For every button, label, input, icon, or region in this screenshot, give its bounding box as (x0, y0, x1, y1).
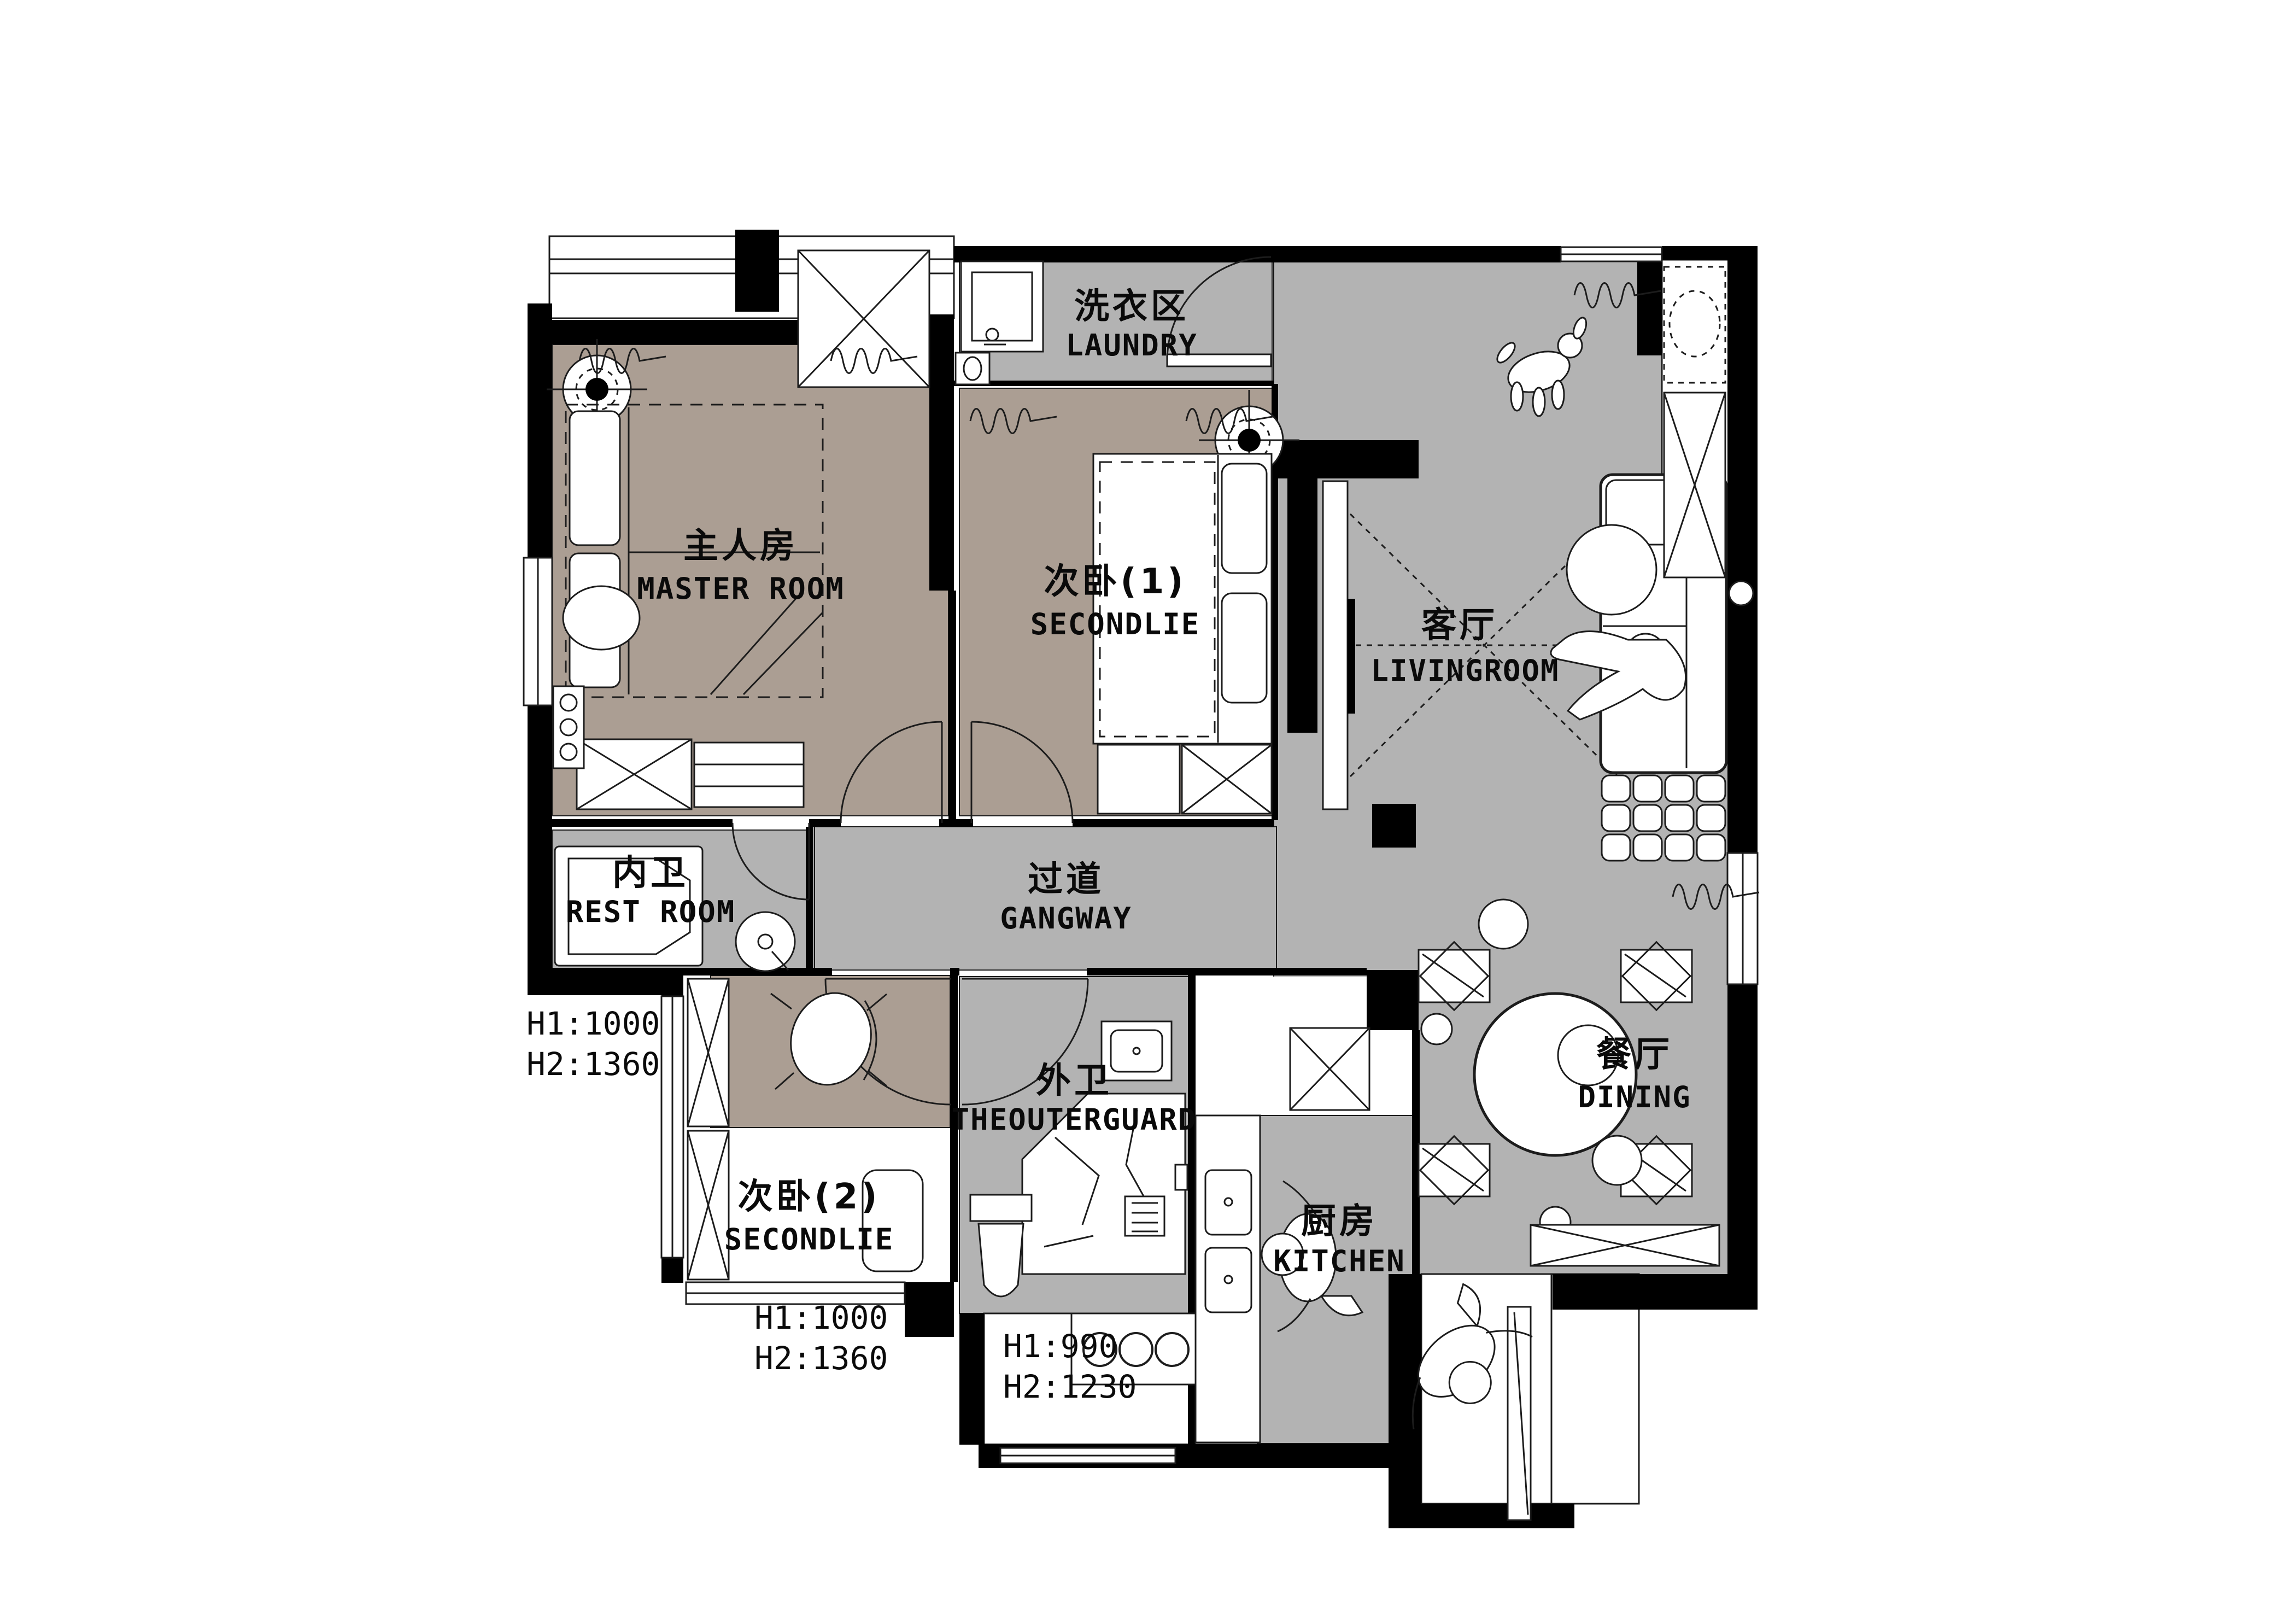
svg-text:洗衣区: 洗衣区 (1074, 287, 1189, 327)
svg-text:LAUNDRY: LAUNDRY (1065, 328, 1198, 363)
kitchen-counter (1196, 1115, 1260, 1442)
svg-text:厨房: 厨房 (1301, 1201, 1378, 1242)
svg-text:主人房: 主人房 (683, 526, 798, 566)
svg-text:H1:990: H1:990 (1003, 1328, 1118, 1365)
bedside-rug (563, 586, 640, 650)
svg-text:LIVINGROOM: LIVINGROOM (1370, 653, 1559, 688)
dining-chair (1419, 942, 1490, 1010)
dim-bottom-left: H1:1000H2:1360 (754, 1299, 888, 1377)
svg-text:H2:1230: H2:1230 (1003, 1368, 1137, 1405)
window-master-bay (524, 558, 552, 705)
laundry-sink (961, 261, 1043, 352)
floor-plan-canvas: 主人房MASTER ROOM 次卧(1)SECONDLIE 次卧(2)SECON… (0, 0, 2296, 1624)
bedroom2-wardrobe (688, 979, 729, 1280)
svg-text:GANGWAY: GANGWAY (1000, 901, 1132, 936)
pendant-light (1479, 899, 1528, 949)
door-entry (1508, 1307, 1531, 1520)
window-right (1727, 853, 1758, 984)
master-dresser (694, 743, 804, 807)
wash-basin (736, 912, 795, 971)
balcony-wardrobe (798, 250, 929, 387)
floor-plan: 主人房MASTER ROOM 次卧(1)SECONDLIE 次卧(2)SECON… (0, 0, 2296, 1624)
room-label-bedroom1: 次卧(1)SECONDLIE (1030, 562, 1200, 641)
side-table (1567, 525, 1656, 615)
svg-text:次卧(1): 次卧(1) (1044, 562, 1186, 602)
svg-text:REST ROOM: REST ROOM (566, 895, 736, 929)
pendant-light (1592, 1136, 1642, 1185)
window-living-top (1561, 247, 1662, 261)
svg-text:餐厅: 餐厅 (1596, 1035, 1673, 1075)
svg-text:H1:1000: H1:1000 (526, 1005, 660, 1042)
dining-chair (1621, 942, 1692, 1010)
wall-appliance (553, 686, 584, 768)
dining-chair (1419, 1136, 1490, 1204)
svg-text:次卧(2): 次卧(2) (737, 1177, 880, 1217)
svg-text:MASTER ROOM: MASTER ROOM (637, 571, 845, 606)
window-bedroom2-left (661, 996, 683, 1258)
shoe-cabinet (1531, 1225, 1719, 1266)
pendant-light (1421, 1014, 1452, 1044)
svg-text:H2:1360: H2:1360 (754, 1340, 888, 1377)
master-cabinet (577, 739, 692, 809)
svg-text:SECONDLIE: SECONDLIE (724, 1222, 894, 1257)
svg-text:外卫: 外卫 (1036, 1061, 1112, 1101)
window-stove-bay (1000, 1448, 1175, 1463)
dim-left: H1:1000H2:1360 (526, 1005, 660, 1083)
room-label-laundry: 洗衣区LAUNDRY (1065, 287, 1198, 363)
svg-text:KITCHEN: KITCHEN (1273, 1244, 1405, 1278)
svg-text:SECONDLIE: SECONDLIE (1030, 607, 1200, 641)
svg-text:THEOUTERGUARD: THEOUTERGUARD (952, 1102, 1197, 1137)
laundry-drain (956, 353, 989, 384)
svg-text:H2:1360: H2:1360 (526, 1045, 660, 1083)
room-label-bedroom2: 次卧(2)SECONDLIE (724, 1177, 894, 1257)
svg-text:内卫: 内卫 (612, 853, 689, 893)
svg-text:DINING: DINING (1578, 1080, 1691, 1114)
bedroom1-cabinet (1098, 745, 1272, 814)
svg-text:H1:1000: H1:1000 (754, 1299, 888, 1336)
fridge (1290, 1028, 1369, 1110)
svg-text:过道: 过道 (1028, 860, 1104, 900)
svg-text:客厅: 客厅 (1421, 605, 1498, 646)
